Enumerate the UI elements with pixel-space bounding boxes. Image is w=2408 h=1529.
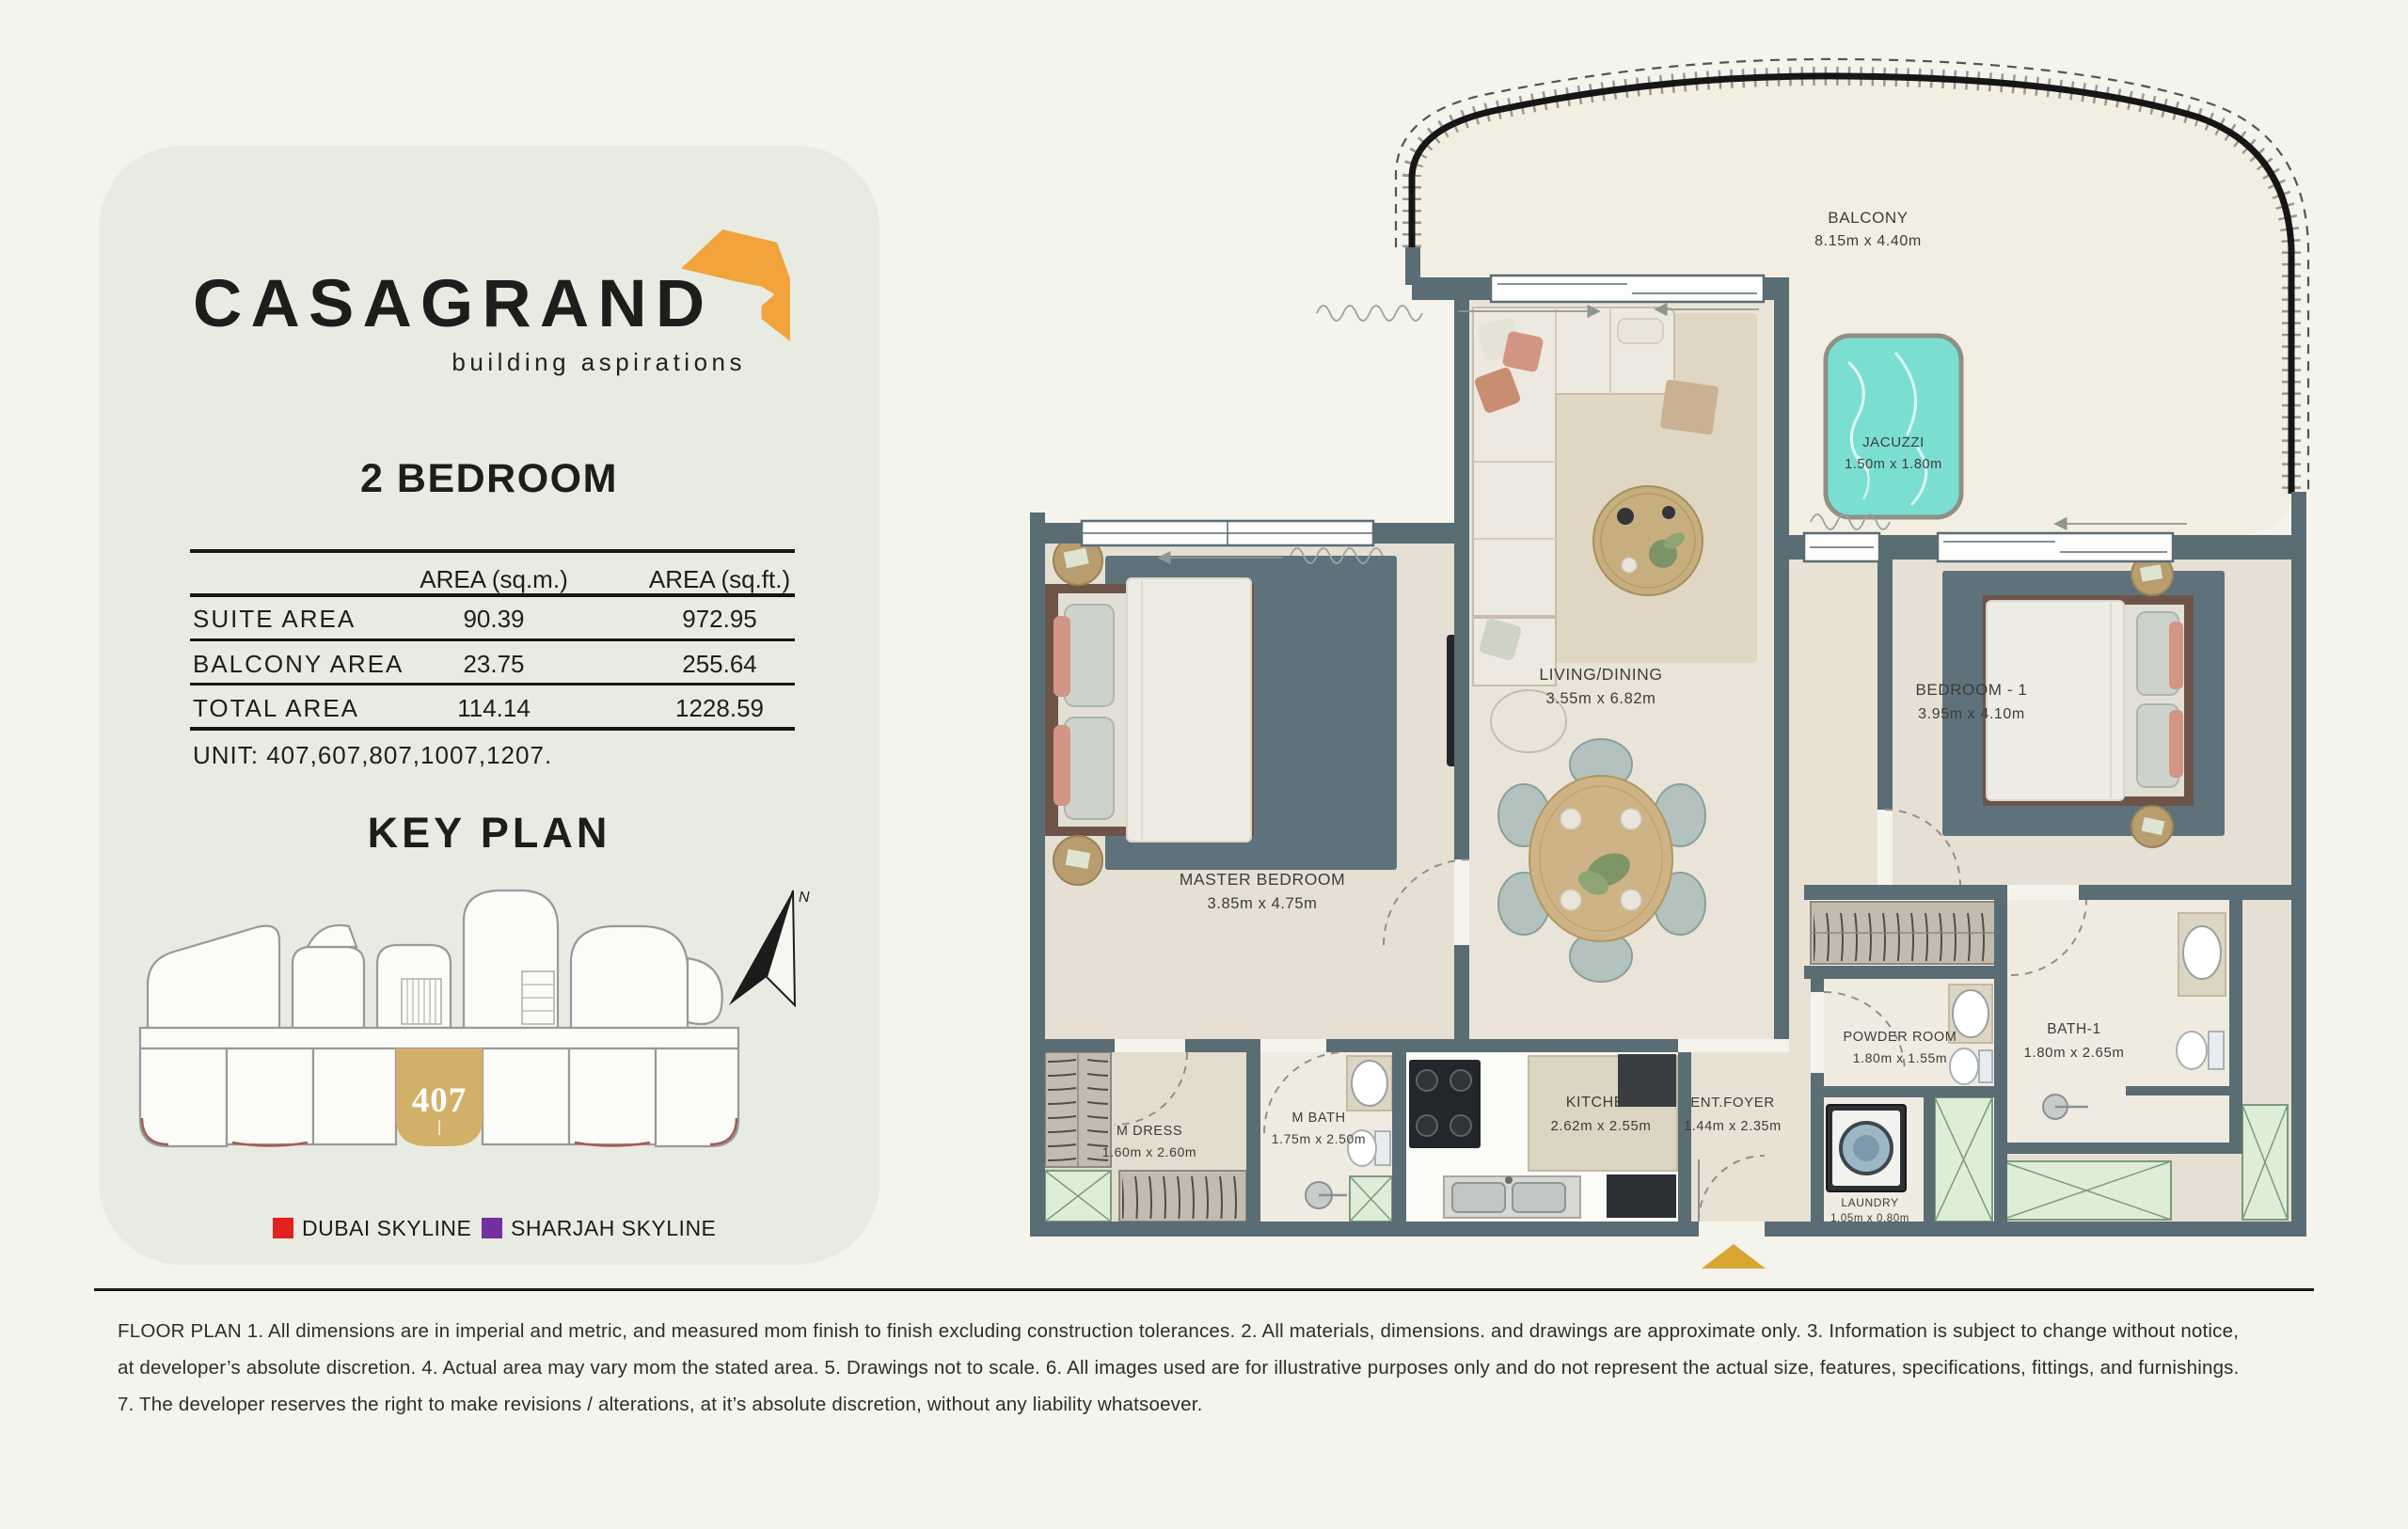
table-row-balcony: BALCONY AREA 23.75 255.64 [190,650,795,678]
brand-tagline: building aspirations [343,348,746,377]
row-sqm: 114.14 [400,694,588,723]
row-label: BALCONY AREA [193,650,404,679]
table-rule [190,638,795,641]
jacuzzi-label: JACUZZI [1862,434,1925,450]
svg-text:3.85m x 4.75m: 3.85m x 4.75m [1208,895,1318,912]
svg-text:1.50m x 1.80m: 1.50m x 1.80m [1845,457,1942,472]
legend-swatch-purple [482,1218,502,1238]
powder-label: POWDER ROOM [1844,1030,1957,1045]
entrance-arrow-marker [1702,1244,1766,1269]
table-row-total: TOTAL AREA 114.14 1228.59 [190,694,795,722]
unit-type-title: 2 BEDROOM [99,456,879,502]
key-plan-drawing: 407 N [119,868,820,1211]
disclaimer-text: FLOOR PLAN 1. All dimensions are in impe… [118,1313,2240,1423]
legend-sharjah-skyline: SHARJAH SKYLINE [482,1217,716,1239]
mdress-label: M DRESS [1117,1124,1182,1139]
laundry-machine [1827,1105,1906,1191]
bedroom1-label: BEDROOM - 1 [1915,681,2027,699]
svg-text:2.62m x 2.55m: 2.62m x 2.55m [1550,1118,1651,1134]
foyer-label: ENT.FOYER [1690,1095,1775,1111]
row-sqm: 90.39 [400,605,588,634]
svg-text:8.15m x 4.40m: 8.15m x 4.40m [1814,233,1922,249]
row-label: TOTAL AREA [193,694,359,723]
laundry-label: LAUNDRY [1841,1196,1898,1209]
legend-dubai-skyline: DUBAI SKYLINE [273,1217,471,1239]
footer-divider [94,1288,2314,1291]
svg-text:1.05m x 0.80m: 1.05m x 0.80m [1830,1213,1909,1224]
legend-label: SHARJAH SKYLINE [511,1216,716,1241]
svg-text:3.95m x 4.10m: 3.95m x 4.10m [1918,706,2025,722]
svg-text:3.55m x 6.82m: 3.55m x 6.82m [1546,690,1656,707]
bath1-label: BATH-1 [2047,1021,2101,1037]
legend-label: DUBAI SKYLINE [302,1216,471,1241]
north-arrow-icon: N [729,890,810,1005]
table-rule [190,683,795,686]
brand-logo-text: CASAGRAND [193,266,713,342]
table-header-sqft: AREA (sq.ft.) [626,565,814,594]
row-sqm: 23.75 [400,650,588,679]
balcony-label: BALCONY [1828,209,1908,227]
table-rule [190,593,795,597]
svg-text:1.60m x 2.60m: 1.60m x 2.60m [1102,1144,1196,1159]
unit-numbers-line: UNIT: 407,607,807,1007,1207. [193,741,552,770]
disclaimer-line-1: FLOOR PLAN 1. All dimensions are in impe… [118,1313,2240,1349]
master-bed [1045,536,1397,885]
row-label: SUITE AREA [193,605,356,634]
floor-plan: BALCONY 8.15m x 4.40m JACUZZI 1.50m x 1.… [1016,52,2333,1302]
key-plan-title: KEY PLAN [99,809,879,858]
key-plan-unit-number: 407 [412,1081,467,1120]
svg-text:1.75m x 2.50m: 1.75m x 2.50m [1272,1131,1366,1146]
table-header-row: AREA (sq.m.) AREA (sq.ft.) [190,565,795,593]
disclaimer-line-3: 7. The developer reserves the right to m… [118,1386,2240,1423]
svg-text:1.80m x 1.55m: 1.80m x 1.55m [1853,1050,1947,1065]
kitchen-label: KITCHEN [1566,1095,1636,1111]
north-label: N [799,890,810,906]
bedroom1-bed [1942,554,2225,847]
row-sqft: 255.64 [626,650,814,679]
brand-logo-arrow-icon [670,219,801,349]
table-rule [190,549,795,553]
master-label: MASTER BEDROOM [1180,870,1346,889]
unit-info-card: CASAGRAND building aspirations 2 BEDROOM… [99,146,879,1265]
mbath-label: M BATH [1291,1111,1345,1126]
legend-swatch-red [273,1218,293,1238]
living-label: LIVING/DINING [1539,665,1662,684]
bedroom1-closet [1811,902,2005,964]
table-header-sqm: AREA (sq.m.) [400,565,588,594]
kitchen-fixtures [1409,1054,1677,1218]
svg-text:1.44m x 2.35m: 1.44m x 2.35m [1684,1119,1782,1134]
table-rule [190,727,795,731]
table-row-suite: SUITE AREA 90.39 972.95 [190,605,795,633]
svg-text:1.80m x 2.65m: 1.80m x 2.65m [2023,1045,2124,1061]
row-sqft: 1228.59 [626,694,814,723]
jacuzzi [1826,336,1961,517]
living-coffee-table [1593,486,1703,595]
row-sqft: 972.95 [626,605,814,634]
disclaimer-line-2: at developer’s absolute discretion. 4. A… [118,1349,2240,1386]
